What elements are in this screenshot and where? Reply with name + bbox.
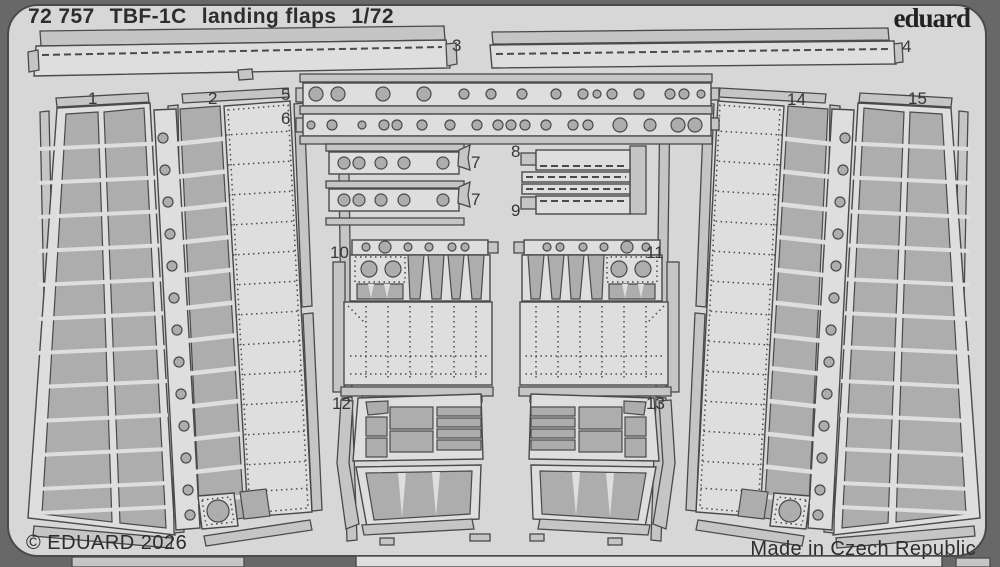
header-title: 72 757 TBF-1C landing flaps 1/72 — [28, 5, 394, 29]
part-label-8: 8 — [511, 143, 520, 160]
catalog-number: 72 757 — [28, 5, 95, 29]
part-label-5: 5 — [281, 86, 290, 103]
part-label-11: 11 — [646, 244, 664, 261]
part-label-7b: 7 — [471, 191, 480, 208]
part-6-spar — [296, 106, 719, 144]
part-label-3: 3 — [452, 37, 461, 54]
part-label-15: 15 — [908, 90, 927, 107]
part-5-spar — [296, 74, 719, 106]
eduard-logo: eduard — [893, 3, 970, 34]
copyright-text: © EDUARD 2026 — [26, 532, 187, 555]
part-11-flap-bay — [514, 240, 679, 402]
aircraft-name: TBF-1C — [110, 5, 187, 29]
part-label-2: 2 — [208, 90, 217, 107]
part-label-12: 12 — [332, 395, 351, 412]
made-in-text: Made in Czech Republic — [750, 538, 976, 561]
part-label-1: 1 — [88, 90, 97, 107]
scale-label: 1/72 — [351, 5, 393, 29]
part-label-9: 9 — [511, 202, 520, 219]
product-subject: landing flaps — [202, 5, 337, 29]
part-label-6: 6 — [281, 110, 290, 127]
part-label-4: 4 — [902, 38, 911, 55]
fret-drawing — [0, 0, 1000, 567]
part-label-14: 14 — [787, 91, 806, 108]
part-label-10: 10 — [330, 244, 349, 261]
part-label-7a: 7 — [471, 154, 480, 171]
part-4-strip — [490, 28, 903, 68]
part-label-13: 13 — [646, 395, 665, 412]
part-8-9-strips — [521, 146, 646, 214]
part-10-flap-bay — [333, 240, 498, 402]
